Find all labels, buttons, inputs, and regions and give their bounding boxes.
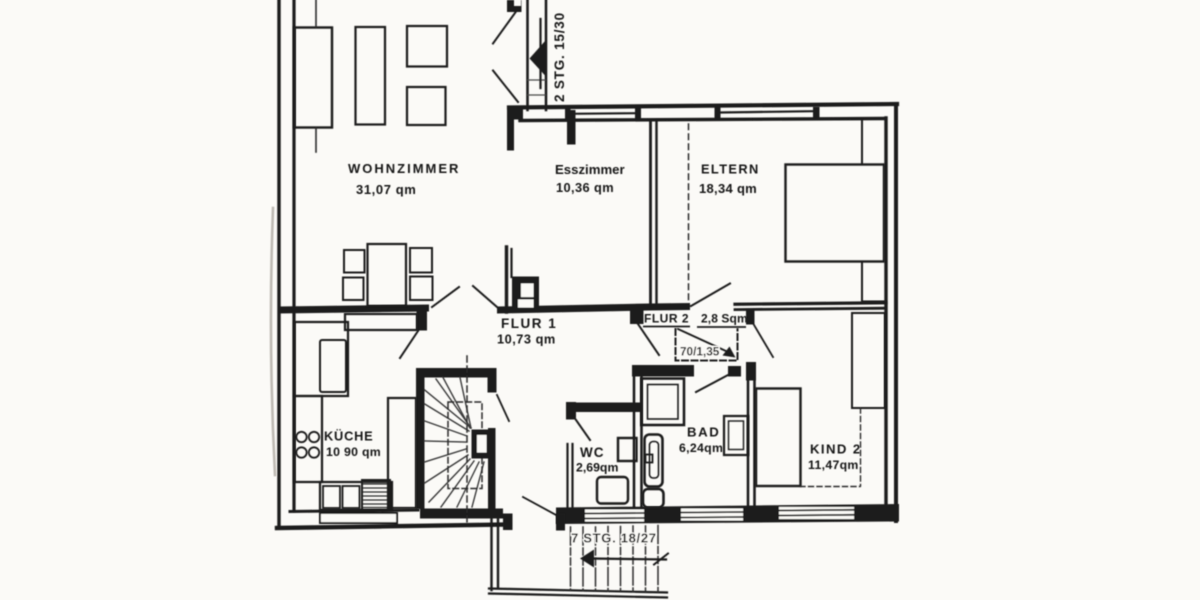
svg-text:WOHNZIMMER: WOHNZIMMER <box>348 161 460 176</box>
svg-text:FLUR 1: FLUR 1 <box>501 316 557 331</box>
svg-text:BAD: BAD <box>687 425 720 440</box>
svg-text:FLUR 2: FLUR 2 <box>644 312 689 326</box>
svg-text:ELTERN: ELTERN <box>701 162 760 177</box>
svg-text:6,24qm: 6,24qm <box>679 441 723 455</box>
svg-text:2 STG. 15/30: 2 STG. 15/30 <box>552 12 567 102</box>
svg-text:10 90 qm: 10 90 qm <box>326 445 381 459</box>
svg-text:2,8 Sqm: 2,8 Sqm <box>701 312 748 326</box>
svg-text:Esszimmer: Esszimmer <box>555 162 625 177</box>
svg-text:10,73 qm: 10,73 qm <box>497 332 556 347</box>
svg-text:WC: WC <box>580 445 605 460</box>
svg-text:KIND 2: KIND 2 <box>810 442 862 457</box>
svg-text:70/1,35: 70/1,35 <box>680 345 720 359</box>
svg-text:2,69qm: 2,69qm <box>576 461 618 475</box>
svg-text:KÜCHE: KÜCHE <box>324 429 374 444</box>
svg-text:18,34 qm: 18,34 qm <box>699 181 757 196</box>
svg-text:7 STG. 18/27: 7 STG. 18/27 <box>571 531 657 546</box>
svg-text:10,36 qm: 10,36 qm <box>556 180 614 195</box>
svg-text:11,47qm: 11,47qm <box>808 458 859 472</box>
svg-text:31,07 qm: 31,07 qm <box>356 182 416 197</box>
